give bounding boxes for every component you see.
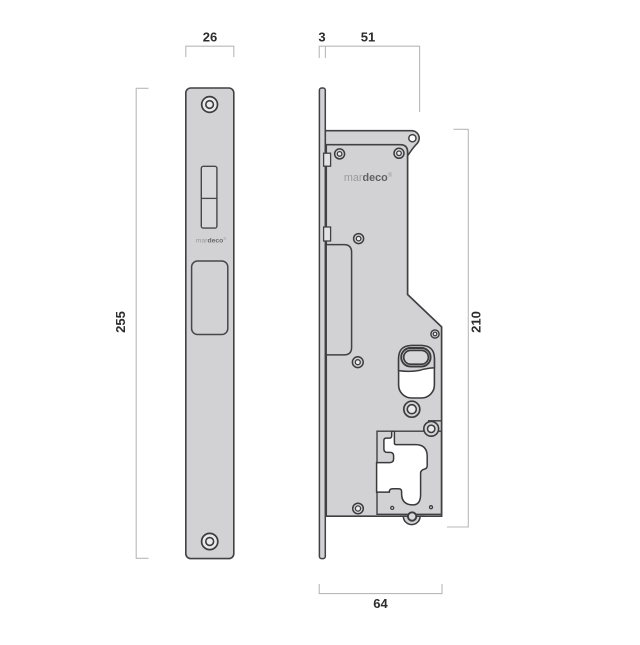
svg-text:210: 210 bbox=[469, 311, 484, 333]
svg-text:255: 255 bbox=[113, 311, 128, 333]
svg-text:mardeco®: mardeco® bbox=[196, 236, 227, 245]
svg-text:51: 51 bbox=[361, 30, 375, 45]
svg-text:mardeco®: mardeco® bbox=[344, 172, 393, 184]
svg-text:64: 64 bbox=[373, 596, 388, 611]
svg-text:3: 3 bbox=[318, 30, 325, 45]
svg-text:26: 26 bbox=[203, 30, 217, 45]
